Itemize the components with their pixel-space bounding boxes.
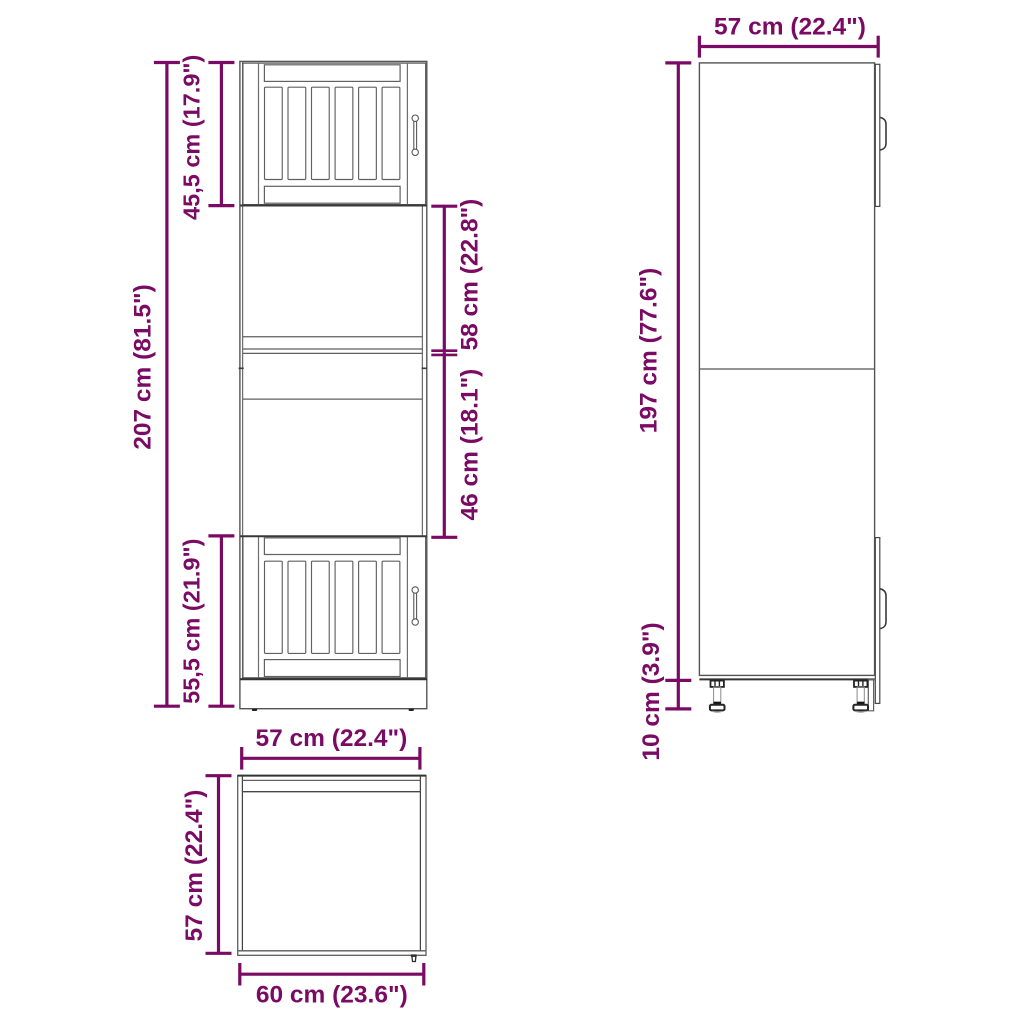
svg-text:58 cm (22.8"): 58 cm (22.8") bbox=[457, 199, 484, 351]
svg-text:57 cm (22.4"): 57 cm (22.4") bbox=[714, 14, 866, 41]
svg-text:197 cm (77.6"): 197 cm (77.6") bbox=[636, 268, 663, 434]
svg-text:45,5 cm (17.9"): 45,5 cm (17.9") bbox=[179, 55, 205, 220]
svg-text:60 cm (23.6"): 60 cm (23.6") bbox=[256, 982, 408, 1009]
svg-text:55,5 cm (21.9"): 55,5 cm (21.9") bbox=[179, 539, 205, 704]
svg-text:57 cm (22.4"): 57 cm (22.4") bbox=[181, 790, 208, 942]
svg-text:46 cm (18.1"): 46 cm (18.1") bbox=[457, 369, 484, 521]
svg-text:10 cm (3.9"): 10 cm (3.9") bbox=[638, 622, 665, 760]
svg-text:207 cm (81.5"): 207 cm (81.5") bbox=[129, 284, 156, 450]
svg-text:57 cm (22.4"): 57 cm (22.4") bbox=[255, 725, 407, 752]
